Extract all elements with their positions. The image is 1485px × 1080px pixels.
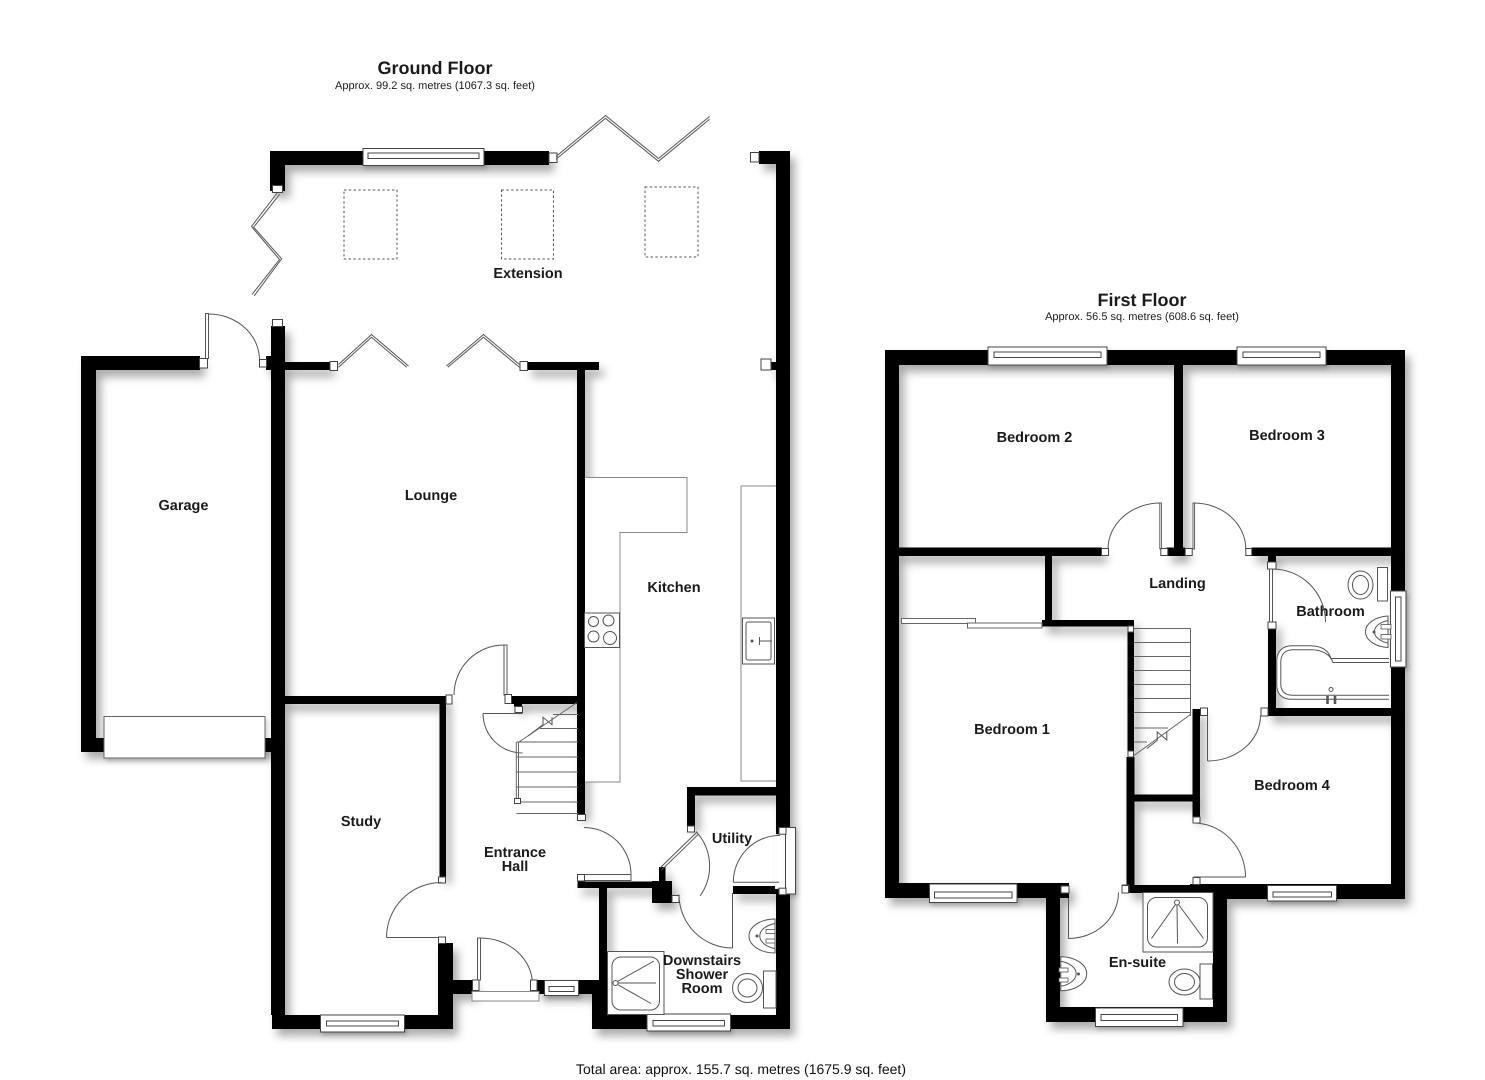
svg-text:Bedroom 3: Bedroom 3	[1249, 428, 1325, 444]
svg-text:Bathroom: Bathroom	[1296, 604, 1364, 620]
svg-text:Room: Room	[681, 981, 722, 997]
svg-text:En-suite: En-suite	[1109, 955, 1166, 971]
svg-text:Total area: approx. 155.7 sq.: Total area: approx. 155.7 sq. metres (16…	[576, 1061, 906, 1077]
svg-text:Utility: Utility	[712, 831, 752, 847]
svg-text:Extension: Extension	[493, 266, 562, 282]
svg-text:Hall: Hall	[502, 859, 529, 875]
svg-text:Approx. 56.5 sq. metres (608.6: Approx. 56.5 sq. metres (608.6 sq. feet)	[1045, 311, 1239, 323]
svg-text:Lounge: Lounge	[405, 488, 457, 504]
svg-text:First Floor: First Floor	[1098, 290, 1187, 310]
svg-text:Bedroom 1: Bedroom 1	[974, 722, 1050, 738]
svg-text:Landing: Landing	[1149, 576, 1205, 592]
svg-text:Ground Floor: Ground Floor	[378, 58, 493, 78]
svg-text:Approx. 99.2 sq. metres (1067.: Approx. 99.2 sq. metres (1067.3 sq. feet…	[335, 80, 535, 92]
svg-text:Study: Study	[341, 814, 381, 830]
svg-text:Kitchen: Kitchen	[647, 580, 700, 596]
svg-text:Bedroom 4: Bedroom 4	[1254, 778, 1330, 794]
svg-text:Garage: Garage	[159, 498, 209, 514]
svg-text:Bedroom 2: Bedroom 2	[997, 430, 1073, 446]
